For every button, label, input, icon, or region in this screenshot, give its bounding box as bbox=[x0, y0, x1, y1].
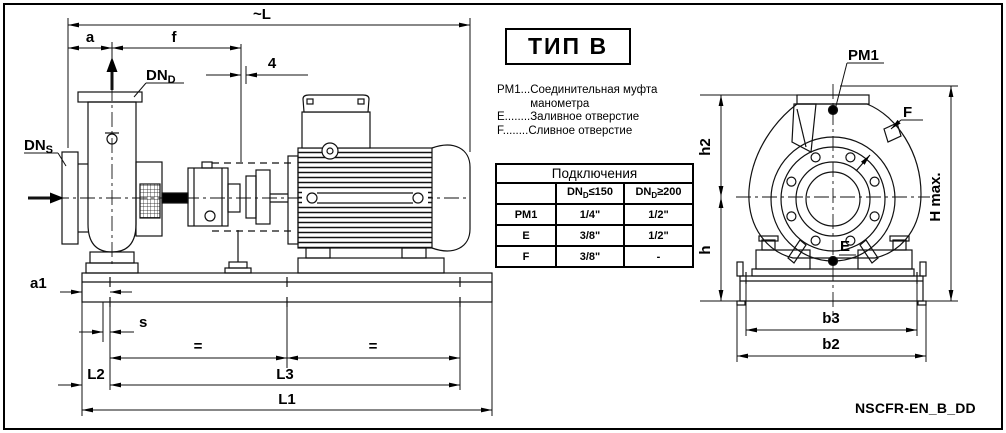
legend-item-f: F........ Сливное отверстие bbox=[497, 125, 702, 139]
nozzle-labels: DNS DND bbox=[24, 67, 184, 166]
lifting-eyebolt bbox=[322, 143, 338, 159]
legend: PM1... Соединительная муфта манометра E.… bbox=[497, 84, 702, 138]
dim-label-b2: b2 bbox=[822, 336, 840, 353]
type-label: ТИП В bbox=[528, 33, 608, 60]
dim-label-s: s bbox=[139, 314, 147, 331]
legend-item-e: E........ Заливное отверстие bbox=[497, 111, 702, 125]
dim-label-L3: L3 bbox=[276, 366, 294, 383]
terminal-box bbox=[302, 112, 370, 148]
table-row-e: E 3/8" 1/2" bbox=[496, 225, 693, 246]
flow-arrows bbox=[28, 57, 118, 204]
type-box: ТИП В bbox=[505, 28, 631, 65]
pm1-gauge-port bbox=[829, 106, 838, 115]
electric-motor bbox=[288, 95, 470, 273]
dim-label-b3: b3 bbox=[822, 310, 840, 327]
bearing-frame bbox=[136, 162, 251, 273]
front-dimensions: h2 h H max. b3 b2 bbox=[697, 86, 958, 362]
row-value-2: 1/2" bbox=[624, 225, 693, 246]
dn-cond: ≥200 bbox=[657, 186, 681, 198]
dim-label-a1: a1 bbox=[30, 275, 47, 292]
e-label: E bbox=[840, 238, 850, 255]
legend-item-pm1: PM1... Соединительная муфта манометра bbox=[497, 84, 702, 111]
rotation-arrow bbox=[856, 155, 870, 171]
row-name: F bbox=[496, 246, 556, 267]
dn-cond: ≤150 bbox=[589, 186, 613, 198]
front-port-labels: PM1 F E bbox=[836, 47, 923, 255]
dn-base: DN bbox=[635, 186, 651, 198]
legend-key: F........ bbox=[497, 125, 528, 139]
row-value-1: 3/8" bbox=[556, 246, 624, 267]
legend-text: Сливное отверстие bbox=[528, 125, 656, 139]
connections-table: Подключения DND≤150 DND≥200 PM1 1/4" 1/2… bbox=[495, 163, 694, 268]
table-header-dnd-le150: DND≤150 bbox=[556, 183, 624, 204]
coupling bbox=[212, 163, 292, 231]
row-value-1: 3/8" bbox=[556, 225, 624, 246]
pump-casing bbox=[62, 92, 142, 273]
centerlines-front bbox=[736, 84, 930, 322]
dim-label-equal-2: = bbox=[369, 338, 378, 355]
table-row-f: F 3/8" - bbox=[496, 246, 693, 267]
row-value-2: 1/2" bbox=[624, 204, 693, 225]
dim-label-L2: L2 bbox=[87, 366, 105, 383]
dim-label-a: a bbox=[86, 29, 95, 46]
f-drain-port bbox=[884, 123, 901, 142]
pump-side-view: DNS DND ~L a f bbox=[24, 6, 492, 416]
drawing-code: NSCFR-EN_B_DD bbox=[855, 400, 976, 416]
legend-text: Соединительная муфта манометра bbox=[530, 84, 658, 111]
table-title: Подключения bbox=[496, 164, 693, 183]
table-header-empty bbox=[496, 183, 556, 204]
legend-text: Заливное отверстие bbox=[530, 111, 658, 125]
table-row-pm1: PM1 1/4" 1/2" bbox=[496, 204, 693, 225]
dim-label-h2: h2 bbox=[697, 138, 714, 156]
pump-dimension-drawing: DNS DND ~L a f bbox=[0, 0, 1006, 433]
dim-label-equal-1: = bbox=[194, 338, 203, 355]
dim-label-gap4: 4 bbox=[268, 55, 277, 72]
row-name: E bbox=[496, 225, 556, 246]
legend-key: PM1... bbox=[497, 84, 530, 111]
table-header-dnd-ge200: DND≥200 bbox=[624, 183, 693, 204]
dim-label-L1: L1 bbox=[278, 391, 296, 408]
dim-label-L: ~L bbox=[253, 6, 271, 23]
dim-label-h: h bbox=[697, 245, 714, 254]
pump-front-view: PM1 F E h2 h H max. bbox=[697, 47, 958, 362]
baseplate-side bbox=[82, 273, 492, 307]
dim-label-hmax: H max. bbox=[927, 172, 944, 221]
dim-label-f: f bbox=[172, 29, 178, 46]
e-fill-port bbox=[829, 257, 838, 266]
f-label: F bbox=[903, 104, 912, 121]
dn-base: DN bbox=[567, 186, 583, 198]
row-name: PM1 bbox=[496, 204, 556, 225]
row-value-1: 1/4" bbox=[556, 204, 624, 225]
legend-key: E........ bbox=[497, 111, 530, 125]
row-value-2: - bbox=[624, 246, 693, 267]
pm1-label: PM1 bbox=[848, 47, 879, 64]
